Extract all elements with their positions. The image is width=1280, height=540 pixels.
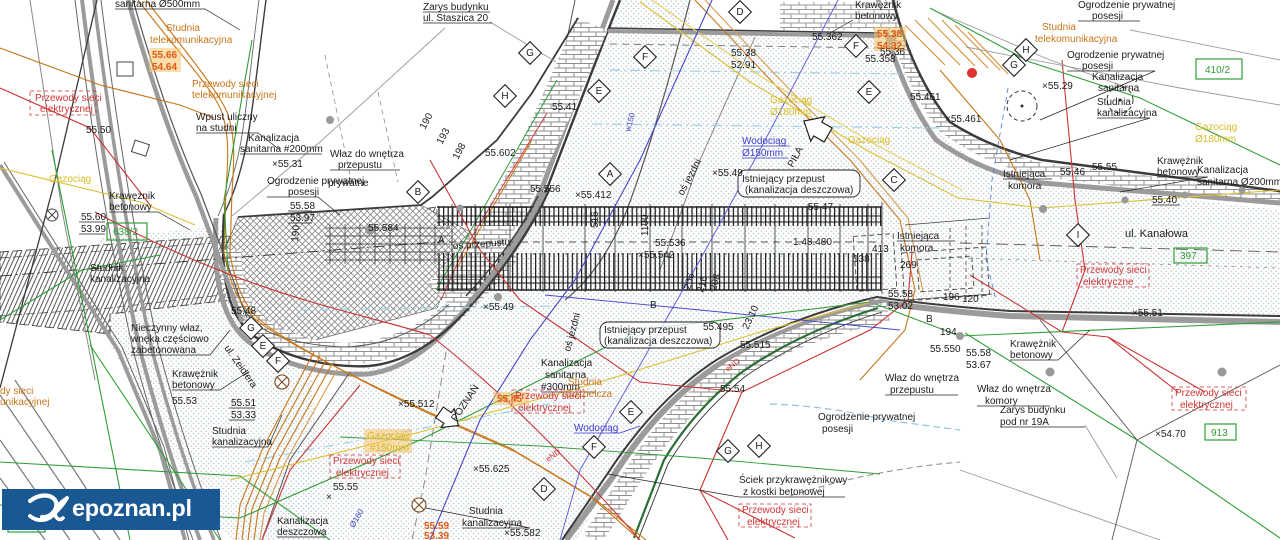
svg-text:kanalizacyjna: kanalizacyjna <box>90 274 150 285</box>
svg-text:Istniejąca: Istniejąca <box>897 231 940 242</box>
svg-text:55.38: 55.38 <box>877 29 902 40</box>
svg-text:55.40: 55.40 <box>1152 195 1177 206</box>
svg-text:55.38: 55.38 <box>731 48 756 59</box>
svg-text:55.48: 55.48 <box>231 306 256 317</box>
svg-text:G: G <box>247 323 255 334</box>
svg-text:unikacyjnej: unikacyjnej <box>0 397 49 408</box>
svg-text:×: × <box>326 492 332 503</box>
svg-text:×55.625: ×55.625 <box>473 464 510 475</box>
svg-text:Wodociąg: Wodociąg <box>742 136 786 147</box>
svg-text:×54.70: ×54.70 <box>1155 429 1186 440</box>
svg-text:betonowy: betonowy <box>172 380 215 391</box>
svg-text:deszczowa: deszczowa <box>277 527 327 538</box>
svg-text:55.58: 55.58 <box>966 348 991 359</box>
svg-text:Ø180mm: Ø180mm <box>770 107 811 118</box>
svg-text:prywatne: prywatne <box>328 178 369 189</box>
svg-text:Gazociąg: Gazociąg <box>770 95 812 106</box>
svg-text:A: A <box>438 235 445 246</box>
svg-text:55.362: 55.362 <box>812 32 843 43</box>
svg-text:posesji: posesji <box>288 187 319 198</box>
svg-text:1.48.480: 1.48.480 <box>793 237 832 248</box>
svg-text:55.47: 55.47 <box>808 202 833 213</box>
svg-text:Ø180mm: Ø180mm <box>1195 134 1236 145</box>
svg-text:D: D <box>540 484 547 495</box>
svg-text:55.46: 55.46 <box>1060 167 1085 178</box>
svg-text:53.39: 53.39 <box>424 531 449 540</box>
svg-text:sanitarna #200mm: sanitarna #200mm <box>240 144 323 155</box>
svg-text:sanitarna Ø500mm: sanitarna Ø500mm <box>115 0 200 10</box>
svg-text:×55.512: ×55.512 <box>398 399 435 410</box>
svg-text:z kostki betonowej: z kostki betonowej <box>743 487 825 498</box>
svg-text:×55.51: ×55.51 <box>1132 308 1163 319</box>
svg-text:posesji: posesji <box>1082 61 1113 72</box>
svg-text:138: 138 <box>853 254 870 265</box>
svg-text:55.602: 55.602 <box>485 148 516 159</box>
svg-text:Studnia: Studnia <box>1042 22 1076 33</box>
svg-text:ul. Kanałowa: ul. Kanałowa <box>1125 228 1189 240</box>
svg-text:betonowy: betonowy <box>855 11 898 22</box>
svg-text:913: 913 <box>1211 428 1228 439</box>
svg-text:Istniejący przepust: Istniejący przepust <box>604 325 687 336</box>
svg-text:Studnia: Studnia <box>212 426 246 437</box>
svg-text:betonowy: betonowy <box>1157 167 1200 178</box>
svg-text:Przewody sieci: Przewody sieci <box>333 456 400 467</box>
svg-text:telekomunikacyjna: telekomunikacyjna <box>1035 34 1118 45</box>
svg-text:epoznan.pl: epoznan.pl <box>72 495 192 521</box>
svg-text:55.556: 55.556 <box>530 184 561 195</box>
svg-text:Ogrodzenie prywatnej: Ogrodzenie prywatnej <box>818 412 915 423</box>
svg-text:A: A <box>607 169 614 180</box>
svg-text:Przewody sieci: Przewody sieci <box>35 93 102 104</box>
svg-text:F: F <box>853 41 859 52</box>
svg-text:196: 196 <box>943 292 960 303</box>
svg-text:55.50: 55.50 <box>86 125 111 136</box>
svg-text:E: E <box>866 87 873 98</box>
svg-text:194: 194 <box>940 327 957 338</box>
svg-text:Przewody sieci: Przewody sieci <box>742 505 809 516</box>
svg-text:55.53: 55.53 <box>172 396 197 407</box>
svg-text:telekomunikacyjna: telekomunikacyjna <box>150 35 233 46</box>
svg-text:elektryczne: elektryczne <box>1083 277 1134 288</box>
svg-text:F: F <box>642 52 648 63</box>
svg-text:I: I <box>1077 230 1080 241</box>
svg-text:55.58: 55.58 <box>290 201 315 212</box>
svg-text:52.91: 52.91 <box>731 60 756 71</box>
svg-text:Przewody sieci: Przewody sieci <box>192 79 259 90</box>
svg-text:G: G <box>1010 60 1018 71</box>
svg-text:Wpust uliczny: Wpust uliczny <box>196 112 258 123</box>
svg-text:Istniejąca: Istniejąca <box>1003 169 1046 180</box>
svg-text:54.32: 54.32 <box>877 41 902 52</box>
svg-text:Studnia: Studnia <box>166 23 200 34</box>
svg-text:×55.49: ×55.49 <box>712 168 743 179</box>
svg-text:E: E <box>596 86 603 97</box>
svg-text:Gazociąg: Gazociąg <box>367 431 409 442</box>
svg-text:Ogrodzenie prywatnej: Ogrodzenie prywatnej <box>1078 0 1175 11</box>
svg-text:269: 269 <box>900 260 917 271</box>
svg-text:55.55: 55.55 <box>333 482 358 493</box>
svg-text:Studnik: Studnik <box>90 263 124 274</box>
svg-text:53.97: 53.97 <box>290 213 315 224</box>
svg-text:elektrycznej: elektrycznej <box>518 403 571 414</box>
svg-text:Krawężnik: Krawężnik <box>1010 339 1057 350</box>
svg-text:55.550: 55.550 <box>930 344 961 355</box>
svg-text:Krawężnik: Krawężnik <box>172 369 219 380</box>
svg-text:komora: komora <box>1008 181 1042 192</box>
svg-text:telekomunikacyjnej: telekomunikacyjnej <box>192 90 277 101</box>
svg-text:Krawężnik: Krawężnik <box>855 0 902 11</box>
svg-text:×55.542: ×55.542 <box>638 250 675 261</box>
svg-text:Przewody sieci: Przewody sieci <box>1175 388 1242 399</box>
svg-text:Kanalizacja: Kanalizacja <box>1092 72 1144 83</box>
svg-text:Istniejący przepust: Istniejący przepust <box>742 174 825 185</box>
svg-text:55.54: 55.54 <box>720 384 745 395</box>
svg-text:53.33: 53.33 <box>231 410 256 421</box>
svg-text:C: C <box>890 175 897 186</box>
svg-text:posesji: posesji <box>822 424 853 435</box>
svg-text:638/2: 638/2 <box>113 227 138 238</box>
svg-text:55.584: 55.584 <box>368 223 399 234</box>
svg-text:53.67: 53.67 <box>966 360 991 371</box>
svg-text:190: 190 <box>290 224 302 242</box>
svg-text:F: F <box>275 356 281 367</box>
svg-text:Zarys budynku: Zarys budynku <box>423 2 489 13</box>
svg-text:55.58: 55.58 <box>888 289 913 300</box>
svg-text:elektrycznej: elektrycznej <box>747 517 800 528</box>
svg-text:wnęka częściowo: wnęka częściowo <box>130 334 209 345</box>
svg-text:Kanalizacja: Kanalizacja <box>1197 165 1249 176</box>
svg-text:F: F <box>591 442 597 453</box>
svg-text:55.495: 55.495 <box>703 322 734 333</box>
svg-text:Studnia: Studnia <box>469 506 503 517</box>
svg-text:H: H <box>1022 45 1029 56</box>
svg-text:Wodociąg: Wodociąg <box>574 423 618 434</box>
svg-text:Właz do wnętrza: Właz do wnętrza <box>977 384 1051 395</box>
svg-text:sanitarna Ø200mm: sanitarna Ø200mm <box>1197 177 1280 188</box>
svg-text:×55.582: ×55.582 <box>504 528 541 539</box>
svg-text:55.358: 55.358 <box>865 54 896 65</box>
svg-text:55.515: 55.515 <box>740 340 771 351</box>
svg-text:przepustu: przepustu <box>890 385 934 396</box>
svg-text:betonowy: betonowy <box>1010 350 1053 361</box>
svg-text:Właz do wnętrza: Właz do wnętrza <box>330 149 404 160</box>
svg-text:Ściek przykrawężnikowy: Ściek przykrawężnikowy <box>739 473 847 486</box>
svg-text:55.60: 55.60 <box>81 212 106 223</box>
svg-text:410/2: 410/2 <box>1205 65 1230 76</box>
svg-text:Ø150mm: Ø150mm <box>742 148 783 159</box>
svg-text:#150mm: #150mm <box>370 443 409 454</box>
svg-text:Kanalizacja: Kanalizacja <box>248 133 300 144</box>
svg-text:zabetonowana: zabetonowana <box>131 345 196 356</box>
svg-text:G: G <box>526 48 534 59</box>
svg-text:pod nr 19A: pod nr 19A <box>1000 417 1049 428</box>
svg-text:Studnia: Studnia <box>1097 97 1131 108</box>
svg-text:E: E <box>628 407 635 418</box>
svg-text:elektrycznej: elektrycznej <box>1180 400 1233 411</box>
svg-text:×55.49: ×55.49 <box>483 302 514 313</box>
svg-text:komora: komora <box>900 243 934 254</box>
svg-text:Gazociąg: Gazociąg <box>848 135 890 146</box>
svg-text:×55.31: ×55.31 <box>272 159 303 170</box>
svg-text:Krawężnik: Krawężnik <box>109 191 156 202</box>
svg-text:Studnia: Studnia <box>568 377 602 388</box>
svg-text:betonowy: betonowy <box>109 202 152 213</box>
svg-text:413: 413 <box>872 244 889 255</box>
svg-text:przepustu: przepustu <box>338 160 382 171</box>
svg-text:55.51: 55.51 <box>231 398 256 409</box>
svg-text:E: E <box>260 341 267 352</box>
svg-text:55.55: 55.55 <box>1092 162 1117 173</box>
svg-text:H: H <box>501 91 508 102</box>
svg-text:Zarys budynku: Zarys budynku <box>1000 405 1066 416</box>
svg-text:(kanalizacja deszczowa): (kanalizacja deszczowa) <box>745 185 853 196</box>
svg-text:Ogrodzenie prywatnej: Ogrodzenie prywatnej <box>1067 50 1164 61</box>
svg-text:G: G <box>724 446 732 457</box>
svg-text:53.99: 53.99 <box>81 224 106 235</box>
svg-text:Kanalizacja: Kanalizacja <box>541 358 593 369</box>
svg-text:Nieczynny właz,: Nieczynny właz, <box>131 323 203 334</box>
svg-text:×55.412: ×55.412 <box>575 190 612 201</box>
svg-text:ul. Staszica 20: ul. Staszica 20 <box>423 13 488 24</box>
svg-text:B: B <box>415 187 422 198</box>
svg-text:Przewody sieci: Przewody sieci <box>515 391 582 402</box>
svg-text:H: H <box>755 441 762 452</box>
svg-text:×55.461: ×55.461 <box>945 114 982 125</box>
svg-text:55.461: 55.461 <box>910 92 941 103</box>
svg-text:B: B <box>650 300 657 311</box>
svg-text:B: B <box>926 314 933 325</box>
svg-text:1100: 1100 <box>640 214 651 236</box>
svg-text:elektrycznej: elektrycznej <box>40 104 93 115</box>
svg-text:55.536: 55.536 <box>655 238 686 249</box>
svg-text:55.66: 55.66 <box>152 50 177 61</box>
svg-text:Przewody sieci: Przewody sieci <box>1080 265 1147 276</box>
svg-text:Kanalizacja: Kanalizacja <box>277 516 329 527</box>
svg-text:Właz do wnętrza: Właz do wnętrza <box>885 373 959 384</box>
svg-text:kanalizacyjna: kanalizacyjna <box>1097 108 1157 119</box>
svg-text:posesji: posesji <box>1092 11 1123 22</box>
svg-text:dy sieci: dy sieci <box>0 386 33 397</box>
svg-text:54.64: 54.64 <box>152 62 177 73</box>
svg-text:elektrycznej: elektrycznej <box>336 468 389 479</box>
svg-text:53.02: 53.02 <box>888 301 913 312</box>
svg-text:516: 516 <box>590 211 601 228</box>
svg-text:Gazociąg: Gazociąg <box>1195 122 1237 133</box>
svg-text:(kanalizacja deszczowa): (kanalizacja deszczowa) <box>604 336 712 347</box>
svg-text:na studni: na studni <box>196 123 237 134</box>
svg-text:120: 120 <box>962 294 979 305</box>
svg-text:Gazociąg: Gazociąg <box>49 174 91 185</box>
svg-text:55.41: 55.41 <box>552 102 577 113</box>
svg-text:×55.29: ×55.29 <box>1042 81 1073 92</box>
svg-text:D: D <box>736 7 743 18</box>
svg-text:397: 397 <box>1180 251 1197 262</box>
svg-text:kanalizacyjna: kanalizacyjna <box>212 437 272 448</box>
